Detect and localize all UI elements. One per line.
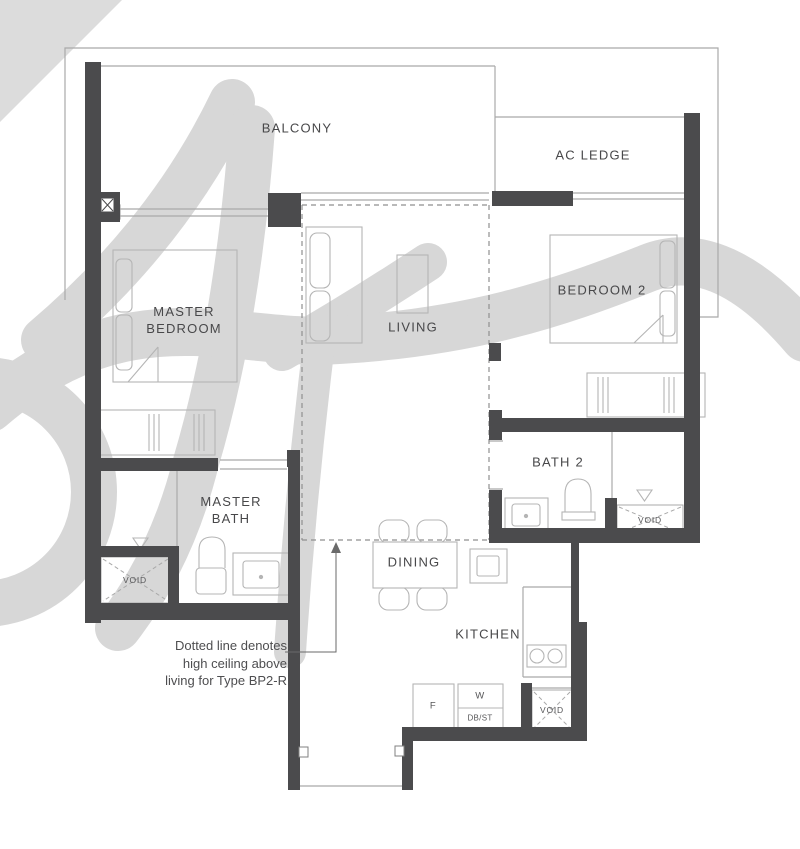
- kitchen-sink: [470, 549, 507, 583]
- dining-chair: [417, 587, 447, 610]
- room-label-kitchen: KITCHEN: [455, 626, 520, 643]
- pillow: [660, 291, 675, 336]
- sofa: [306, 227, 362, 343]
- toilet-base: [562, 512, 595, 520]
- void-label-bath-2: VOID: [638, 515, 662, 525]
- master-wardrobe: [100, 410, 215, 455]
- plan-linework: [0, 0, 800, 849]
- pillow: [116, 315, 132, 370]
- high-ceiling-note: Dotted line denotes high ceiling above l…: [103, 637, 287, 690]
- room-label-dining: DINING: [388, 554, 441, 571]
- hob-burner: [530, 649, 544, 663]
- sink-vanity: [233, 553, 290, 595]
- tv-console: [397, 255, 428, 313]
- room-label-living: LIVING: [388, 319, 438, 336]
- room-label-ac-ledge: AC LEDGE: [555, 147, 630, 164]
- void-label-master-bath: VOID: [123, 575, 147, 585]
- room-label-bath-2: BATH 2: [532, 454, 584, 471]
- toilet-base: [196, 568, 226, 594]
- pillow: [660, 241, 675, 288]
- toilet: [199, 537, 225, 568]
- floor-plan: BALCONY AC LEDGE MASTER BEDROOM LIVING B…: [0, 0, 800, 849]
- bed-fold: [634, 315, 663, 343]
- room-label-master-bath: MASTER BATH: [200, 493, 261, 527]
- appliance-label-db-store: DB/ST: [467, 714, 492, 723]
- appliance-label-fridge: F: [430, 698, 436, 715]
- sofa-cushion: [310, 233, 330, 288]
- toilet: [565, 479, 591, 512]
- dining-chair: [379, 587, 409, 610]
- shower-drain: [637, 490, 652, 501]
- room-label-balcony: BALCONY: [262, 120, 333, 137]
- sofa-cushion: [310, 291, 330, 341]
- hob: [527, 645, 566, 667]
- appliance-label-washer: W: [475, 688, 484, 705]
- room-label-master-bedroom: MASTER BEDROOM: [146, 303, 222, 337]
- void-label-kitchen: VOID: [540, 705, 564, 715]
- room-label-bedroom-2: BEDROOM 2: [558, 282, 647, 299]
- hob-burner: [548, 649, 562, 663]
- pillow: [116, 259, 132, 312]
